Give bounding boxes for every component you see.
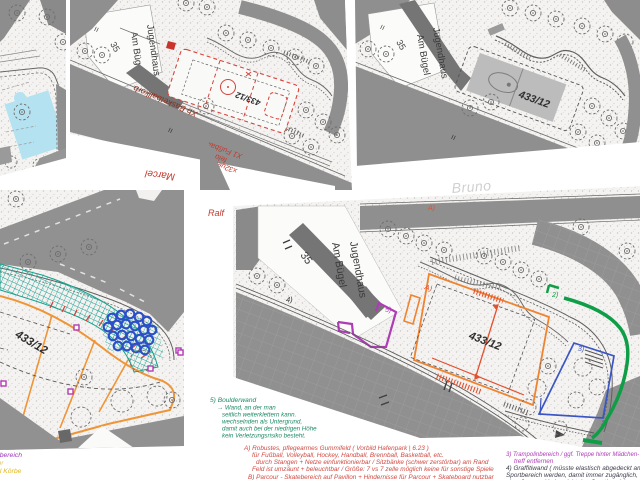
svg-text:B) Parcour - Skatebereich auf: B) Parcour - Skatebereich auf Pavillon +… (248, 474, 495, 480)
svg-text:3): 3) (578, 346, 584, 353)
svg-text:→ Wand, an der man: → Wand, an der man (217, 405, 276, 412)
svg-text:Bruno: Bruno (451, 177, 492, 196)
svg-text:4) Graffitiwand ( müsste elast: 4) Graffitiwand ( müsste elastisch abged… (506, 465, 640, 472)
svg-text:durch Stangen + Netze einfunkt: durch Stangen + Netze einfunktionierbar … (256, 459, 489, 466)
svg-text:A): A) (427, 205, 435, 212)
svg-text:A) Robustes, pflegearmes Gummi: A) Robustes, pflegearmes Gummifeld ( Vor… (243, 445, 429, 452)
svg-text:treff entfernen: treff entfernen (514, 458, 554, 465)
svg-text:Basketball Körbe: Basketball Körbe (0, 468, 22, 475)
svg-text:5) Boulderwand: 5) Boulderwand (210, 397, 257, 404)
svg-text:Trampolinbereich: Trampolinbereich (0, 452, 22, 459)
svg-text:4): 4) (286, 295, 293, 304)
svg-text:seitlich weiterklettern kann.: seitlich weiterklettern kann. (222, 412, 296, 419)
svg-text:5): 5) (385, 307, 391, 314)
svg-text:2): 2) (551, 292, 558, 299)
svg-text:Ralf: Ralf (208, 208, 226, 218)
svg-text:damit auch bei der niedrigen H: damit auch bei der niedrigen Höhe (222, 426, 317, 433)
svg-text:Feld ist umzäunt + beleuchtbar: Feld ist umzäunt + beleuchtbar / Größe: … (252, 466, 494, 473)
svg-text:wechselnden als Untergrund,: wechselnden als Untergrund, (222, 419, 302, 426)
svg-text:Sportbereich werden, damit imm: Sportbereich werden, damit immer zugängl… (506, 472, 638, 479)
svg-text:kein Verletzungsrisiko besteht: kein Verletzungsrisiko besteht. (222, 433, 306, 440)
svg-text:für Fußball, Volleyball, Hocke: für Fußball, Volleyball, Hockey, Handbal… (252, 452, 444, 459)
